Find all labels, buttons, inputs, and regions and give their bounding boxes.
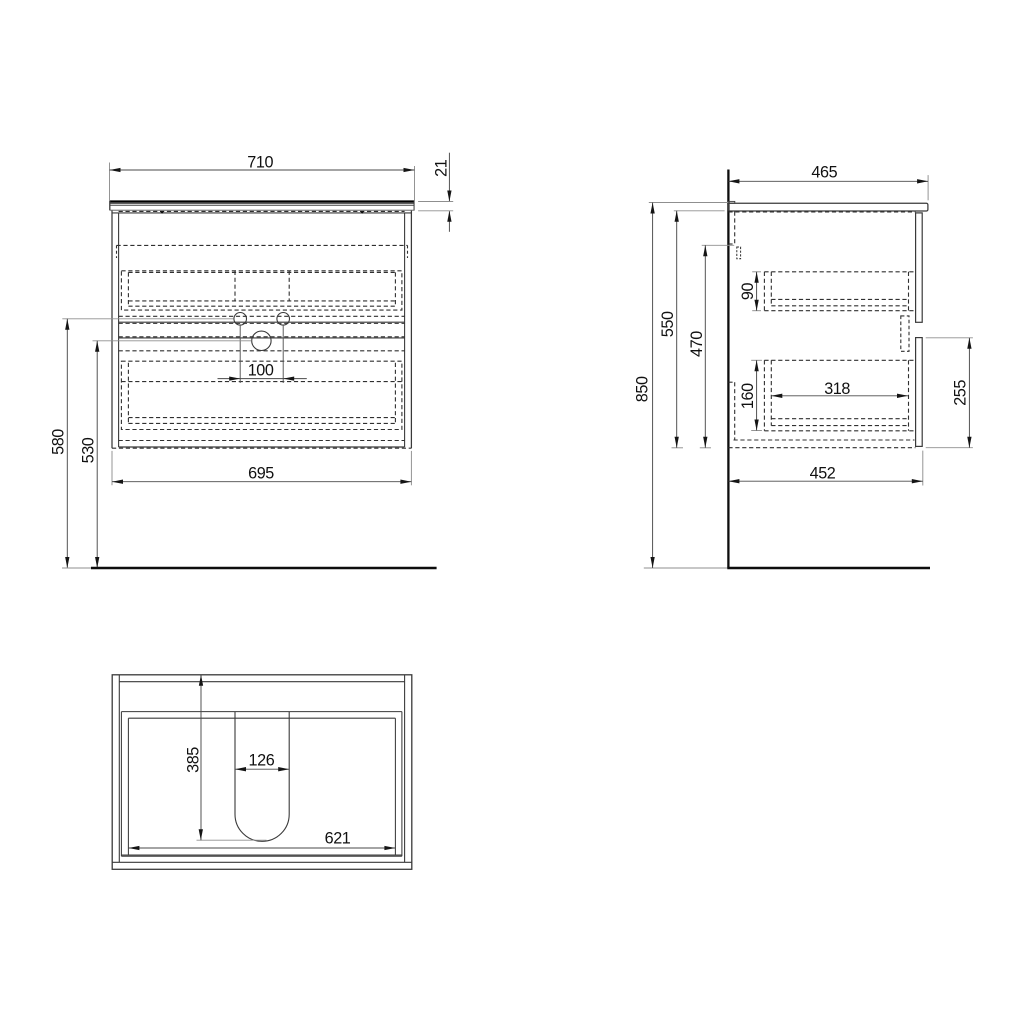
svg-text:621: 621 [325, 830, 351, 848]
svg-text:580: 580 [50, 429, 68, 455]
svg-text:160: 160 [739, 383, 757, 409]
svg-text:850: 850 [634, 376, 652, 402]
svg-text:530: 530 [80, 437, 98, 463]
svg-text:100: 100 [248, 361, 274, 379]
svg-text:21: 21 [432, 159, 450, 177]
svg-text:710: 710 [247, 153, 273, 171]
svg-text:385: 385 [184, 747, 202, 773]
svg-text:465: 465 [811, 164, 837, 182]
svg-text:470: 470 [688, 331, 706, 357]
svg-text:695: 695 [248, 464, 274, 482]
svg-text:90: 90 [739, 283, 757, 301]
svg-text:255: 255 [952, 380, 970, 406]
svg-text:550: 550 [659, 311, 677, 337]
svg-text:452: 452 [810, 464, 836, 482]
svg-text:126: 126 [248, 751, 274, 769]
svg-text:318: 318 [824, 380, 850, 398]
